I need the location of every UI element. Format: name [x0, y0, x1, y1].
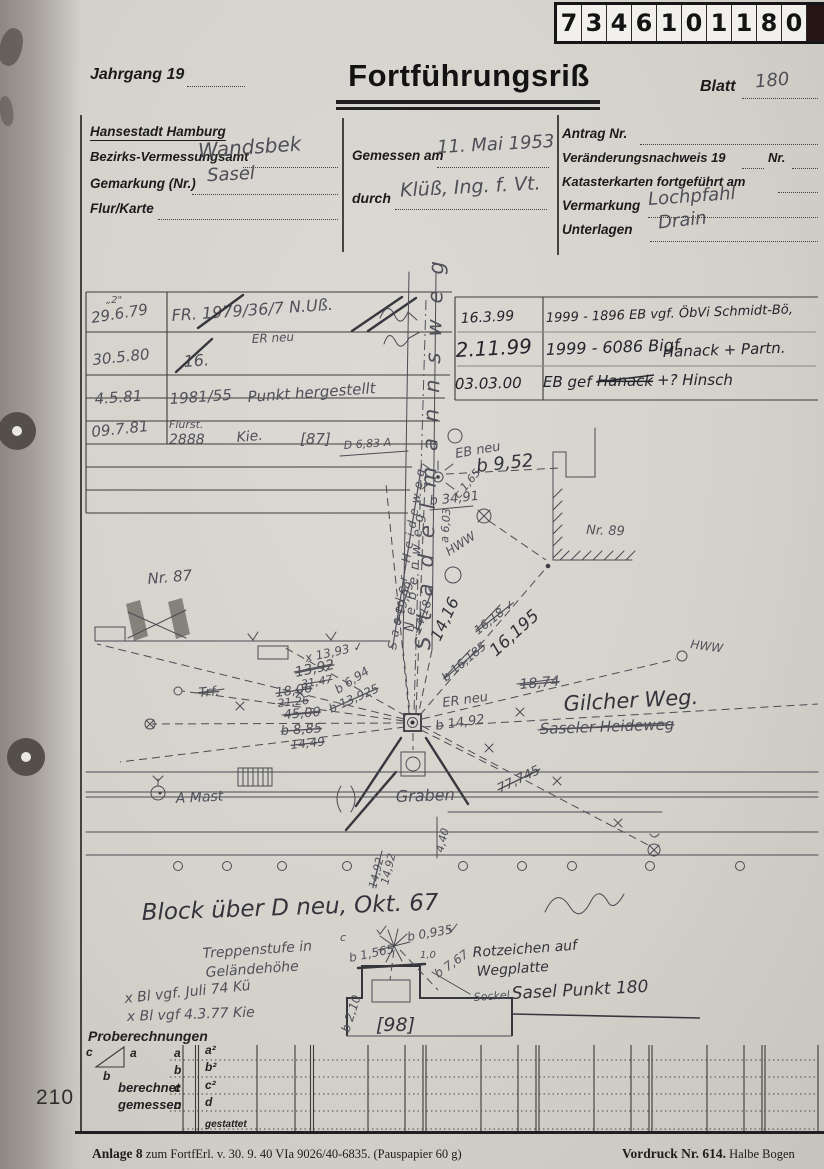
- bl74-note: x Bl vgf. Juli 74 Kü: [123, 978, 252, 1007]
- tri-c-label: c: [86, 1045, 93, 1059]
- row-c2-label: c: [174, 1098, 181, 1112]
- logr-r3-a: EB gef: [543, 373, 594, 391]
- stamp-digit: 8: [757, 5, 782, 41]
- logr-r2-date: 2.11.99: [455, 334, 532, 362]
- c-mark-label: c: [340, 931, 346, 944]
- log-r1-note: FR. 1979/36/7 N.Uß.: [171, 295, 333, 325]
- graben-label: Graben: [395, 785, 455, 806]
- bottom-rule: [75, 1131, 824, 1134]
- m1492b-label: 14,92: [378, 852, 398, 886]
- log-r4-nr: 2888: [169, 432, 205, 448]
- cell-b2-label: b²: [205, 1060, 217, 1074]
- b767-label: b 7,67: [432, 947, 472, 981]
- log-table-right: 16.3.99 1999 - 1896 EB vgf. ÖbVi Schmidt…: [455, 297, 818, 400]
- row-a-label: a: [174, 1046, 181, 1060]
- lower-roads-ditch: A Mast Graben 4,40 14,92 14,92: [86, 768, 818, 890]
- stamp-digit: 6: [632, 5, 657, 41]
- block-signature: [545, 894, 624, 914]
- hatched-post: [126, 600, 148, 641]
- cell-a2-label: a²: [205, 1043, 217, 1057]
- m440-label: 4,40: [433, 827, 452, 854]
- page-number: 210: [36, 1086, 74, 1110]
- building-nr89-label: Nr. 89: [586, 523, 625, 539]
- log-r3-nr: 1981/55: [169, 386, 232, 408]
- punch-hole: [7, 738, 45, 776]
- log-er-neu: ER neu: [251, 330, 294, 346]
- log-r3-date: 4.5.81: [94, 387, 143, 408]
- survey-sketch-sheet: „2" 29.6.79 FR. 1979/36/7 N.Uß. 30.5.80 …: [75, 170, 824, 1140]
- antrag-label: Antrag Nr.: [562, 126, 627, 141]
- a-mast-label: A Mast: [174, 789, 224, 808]
- stamp-digit: 7: [557, 5, 582, 41]
- log-r3-signature: [384, 332, 420, 346]
- m10-label: 1,0: [420, 950, 436, 961]
- street-names-right: Gilcher Weg. Saseler Heideweg HWW: [538, 637, 725, 738]
- antrag-line: [640, 143, 818, 145]
- parcel-87-label: Nr. 87: [147, 566, 193, 588]
- gestattet-label: gestattet: [204, 1119, 247, 1130]
- gemessen-line: [437, 166, 549, 168]
- b16185-label: b 16,185: [439, 639, 489, 684]
- measurement-labels: c 19,99 14,18 ✓ 14,16 b 16,185 16,18 ✓ 1…: [196, 580, 560, 797]
- jahrgang-line: [187, 85, 245, 87]
- gemessen-label: Gemessen am: [352, 148, 444, 163]
- logr-r3-c: +? Hinsch: [657, 371, 733, 389]
- vn-line-1: [742, 167, 764, 169]
- log-table-left: „2" 29.6.79 FR. 1979/36/7 N.Uß. 30.5.80 …: [86, 292, 452, 513]
- cell-d-label: d: [205, 1095, 213, 1109]
- footer-left-rest: zum FortfErl. v. 30. 9. 40 VIa 9026/40-6…: [143, 1147, 462, 1161]
- block-note: Block über D neu, Okt. 67: [141, 890, 439, 926]
- stamp-digit: 1: [657, 5, 682, 41]
- b210-label: b 2,10: [339, 993, 364, 1034]
- log-r2-date: 30.5.80: [92, 345, 151, 369]
- document-number-stamp: 7 3 4 6 1 0 1 1 8 0: [554, 2, 824, 44]
- b1492-label: b 14,92: [434, 712, 485, 734]
- parcel-bracket-98: [98]: [376, 1014, 415, 1036]
- log-r1-date: 29.6.79: [90, 300, 149, 327]
- blatt-line: [742, 97, 818, 99]
- parcel-bracket-87: [87]: [300, 430, 331, 448]
- punch-hole-center: [21, 752, 31, 762]
- b1565-label: b 1,565: [348, 942, 396, 965]
- stamp-digit: 1: [707, 5, 732, 41]
- tri-a-label: a: [130, 1046, 137, 1060]
- gemessen-value: 11. Mai 1953: [437, 131, 555, 158]
- cell-c2-label: c²: [205, 1078, 217, 1092]
- berechnet-label: berechnet: [118, 1080, 181, 1095]
- probe-title: Proberechnungen: [88, 1028, 208, 1044]
- punch-hole-center: [12, 426, 22, 436]
- row-b-label: b: [174, 1063, 181, 1077]
- log-r4-flurst: Flurst.: [169, 418, 203, 431]
- row-c1-label: c: [174, 1081, 181, 1095]
- logr-r1-date: 16.3.99: [460, 308, 514, 327]
- stamp-end-block: [807, 5, 824, 41]
- stamp-digit: 0: [782, 5, 807, 41]
- vn-line-2: [792, 167, 818, 169]
- log-r4-note: Kie.: [236, 428, 263, 446]
- page-title: Fortführungsriß: [336, 58, 602, 94]
- stamp-digit: 0: [682, 5, 707, 41]
- jahrgang-label: Jahrgang 19: [90, 66, 184, 84]
- hww-right-label: HWW: [690, 637, 726, 656]
- footer-left: Anlage 8 zum FortfErl. v. 30. 9. 40 VIa …: [92, 1146, 462, 1162]
- logr-r3-date: 03.03.00: [455, 374, 522, 393]
- scanned-survey-document: 7 3 4 6 1 0 1 1 8 0 Jahrgang 19 Fortführ…: [0, 0, 824, 1169]
- stamp-digit: 4: [607, 5, 632, 41]
- treppe-note-2: Geländehöhe: [205, 959, 299, 981]
- rotzeichen-note-2: Wegplatte: [476, 959, 549, 980]
- footer-right-rest: Halbe Bogen: [726, 1147, 795, 1161]
- tri-b-label: b: [103, 1069, 110, 1083]
- building-nr89: Nr. 89: [546, 428, 635, 568]
- sasel-punkt-label: Sasel Punkt 180: [511, 977, 649, 1004]
- footer-right: Vordruck Nr. 614. Halbe Bogen: [622, 1146, 795, 1162]
- scan-edge-strip: [0, 0, 82, 1169]
- probe-calculations: Proberechnungen c a b a b berechnet c ge…: [86, 1028, 818, 1131]
- gemessen-row-label: gemessen: [117, 1097, 182, 1112]
- blatt-value: 180: [754, 69, 790, 93]
- title-underline-2: [336, 107, 600, 110]
- logr-r2-note2: Hanack + Partn.: [663, 339, 786, 361]
- er-neu-label: ER neu: [441, 690, 489, 711]
- rotzeichen-note-1: Rotzeichen auf: [472, 938, 579, 961]
- a603-label: a 6,03: [438, 508, 453, 544]
- amt-line: [243, 166, 338, 168]
- vn-nr-label: Nr.: [768, 150, 785, 165]
- footer-left-bold: Anlage 8: [92, 1146, 143, 1161]
- vn-label: Veränderungsnachweis 19: [562, 150, 726, 165]
- hatched-post: [168, 598, 190, 639]
- blatt-label: Blatt: [700, 78, 736, 96]
- stamp-digit: 3: [582, 5, 607, 41]
- b0935-label: b 0,935: [406, 922, 454, 944]
- gilcher-weg-label: Gilcher Weg.: [563, 685, 699, 716]
- sockel-label: Sockel: [473, 989, 510, 1004]
- footer-right-bold: Vordruck Nr. 614.: [622, 1146, 726, 1161]
- stamp-digit: 1: [732, 5, 757, 41]
- d683-label: D 6,83 A: [343, 436, 391, 452]
- block-detail-sketch: Block über D neu, Okt. 67 c b 1,565 b 0,…: [123, 890, 700, 1036]
- logr-r1-note: 1999 - 1896 EB vgf. ÖbVi Schmidt-Bö,: [546, 300, 794, 326]
- bl77-note: x Bl vgf 4.3.77 Kie: [126, 1005, 255, 1025]
- log-r3-note: Punkt hergestellt: [247, 379, 377, 406]
- title-underline: [336, 100, 600, 104]
- m1449-label: 14,49: [290, 734, 326, 752]
